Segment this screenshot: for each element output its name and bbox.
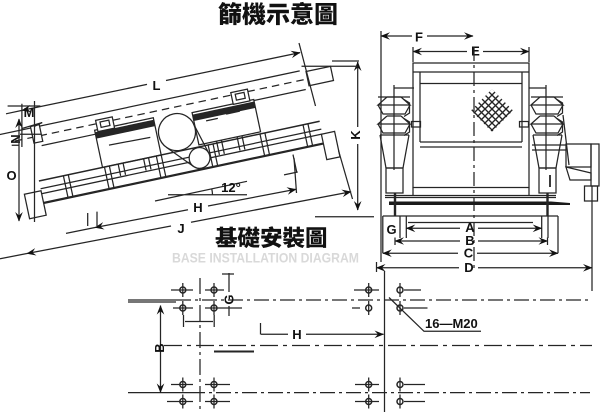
svg-text:J: J (177, 221, 184, 236)
svg-text:BASE INSTALLATION DIAGRAM: BASE INSTALLATION DIAGRAM (172, 250, 359, 266)
svg-text:D: D (464, 260, 473, 275)
svg-text:12°: 12° (221, 180, 241, 195)
svg-text:B: B (152, 343, 167, 352)
svg-text:L: L (153, 78, 161, 93)
svg-text:E: E (471, 44, 480, 59)
svg-text:O: O (6, 168, 16, 183)
svg-text:F: F (415, 30, 423, 45)
svg-text:K: K (348, 130, 363, 140)
svg-text:N: N (8, 134, 23, 143)
svg-text:C: C (464, 246, 474, 261)
svg-text:16—M20: 16—M20 (425, 316, 478, 331)
svg-text:H: H (193, 200, 202, 215)
svg-text:M: M (24, 105, 35, 120)
svg-text:H: H (292, 327, 301, 342)
svg-text:G: G (222, 294, 237, 304)
svg-text:G: G (386, 222, 396, 237)
